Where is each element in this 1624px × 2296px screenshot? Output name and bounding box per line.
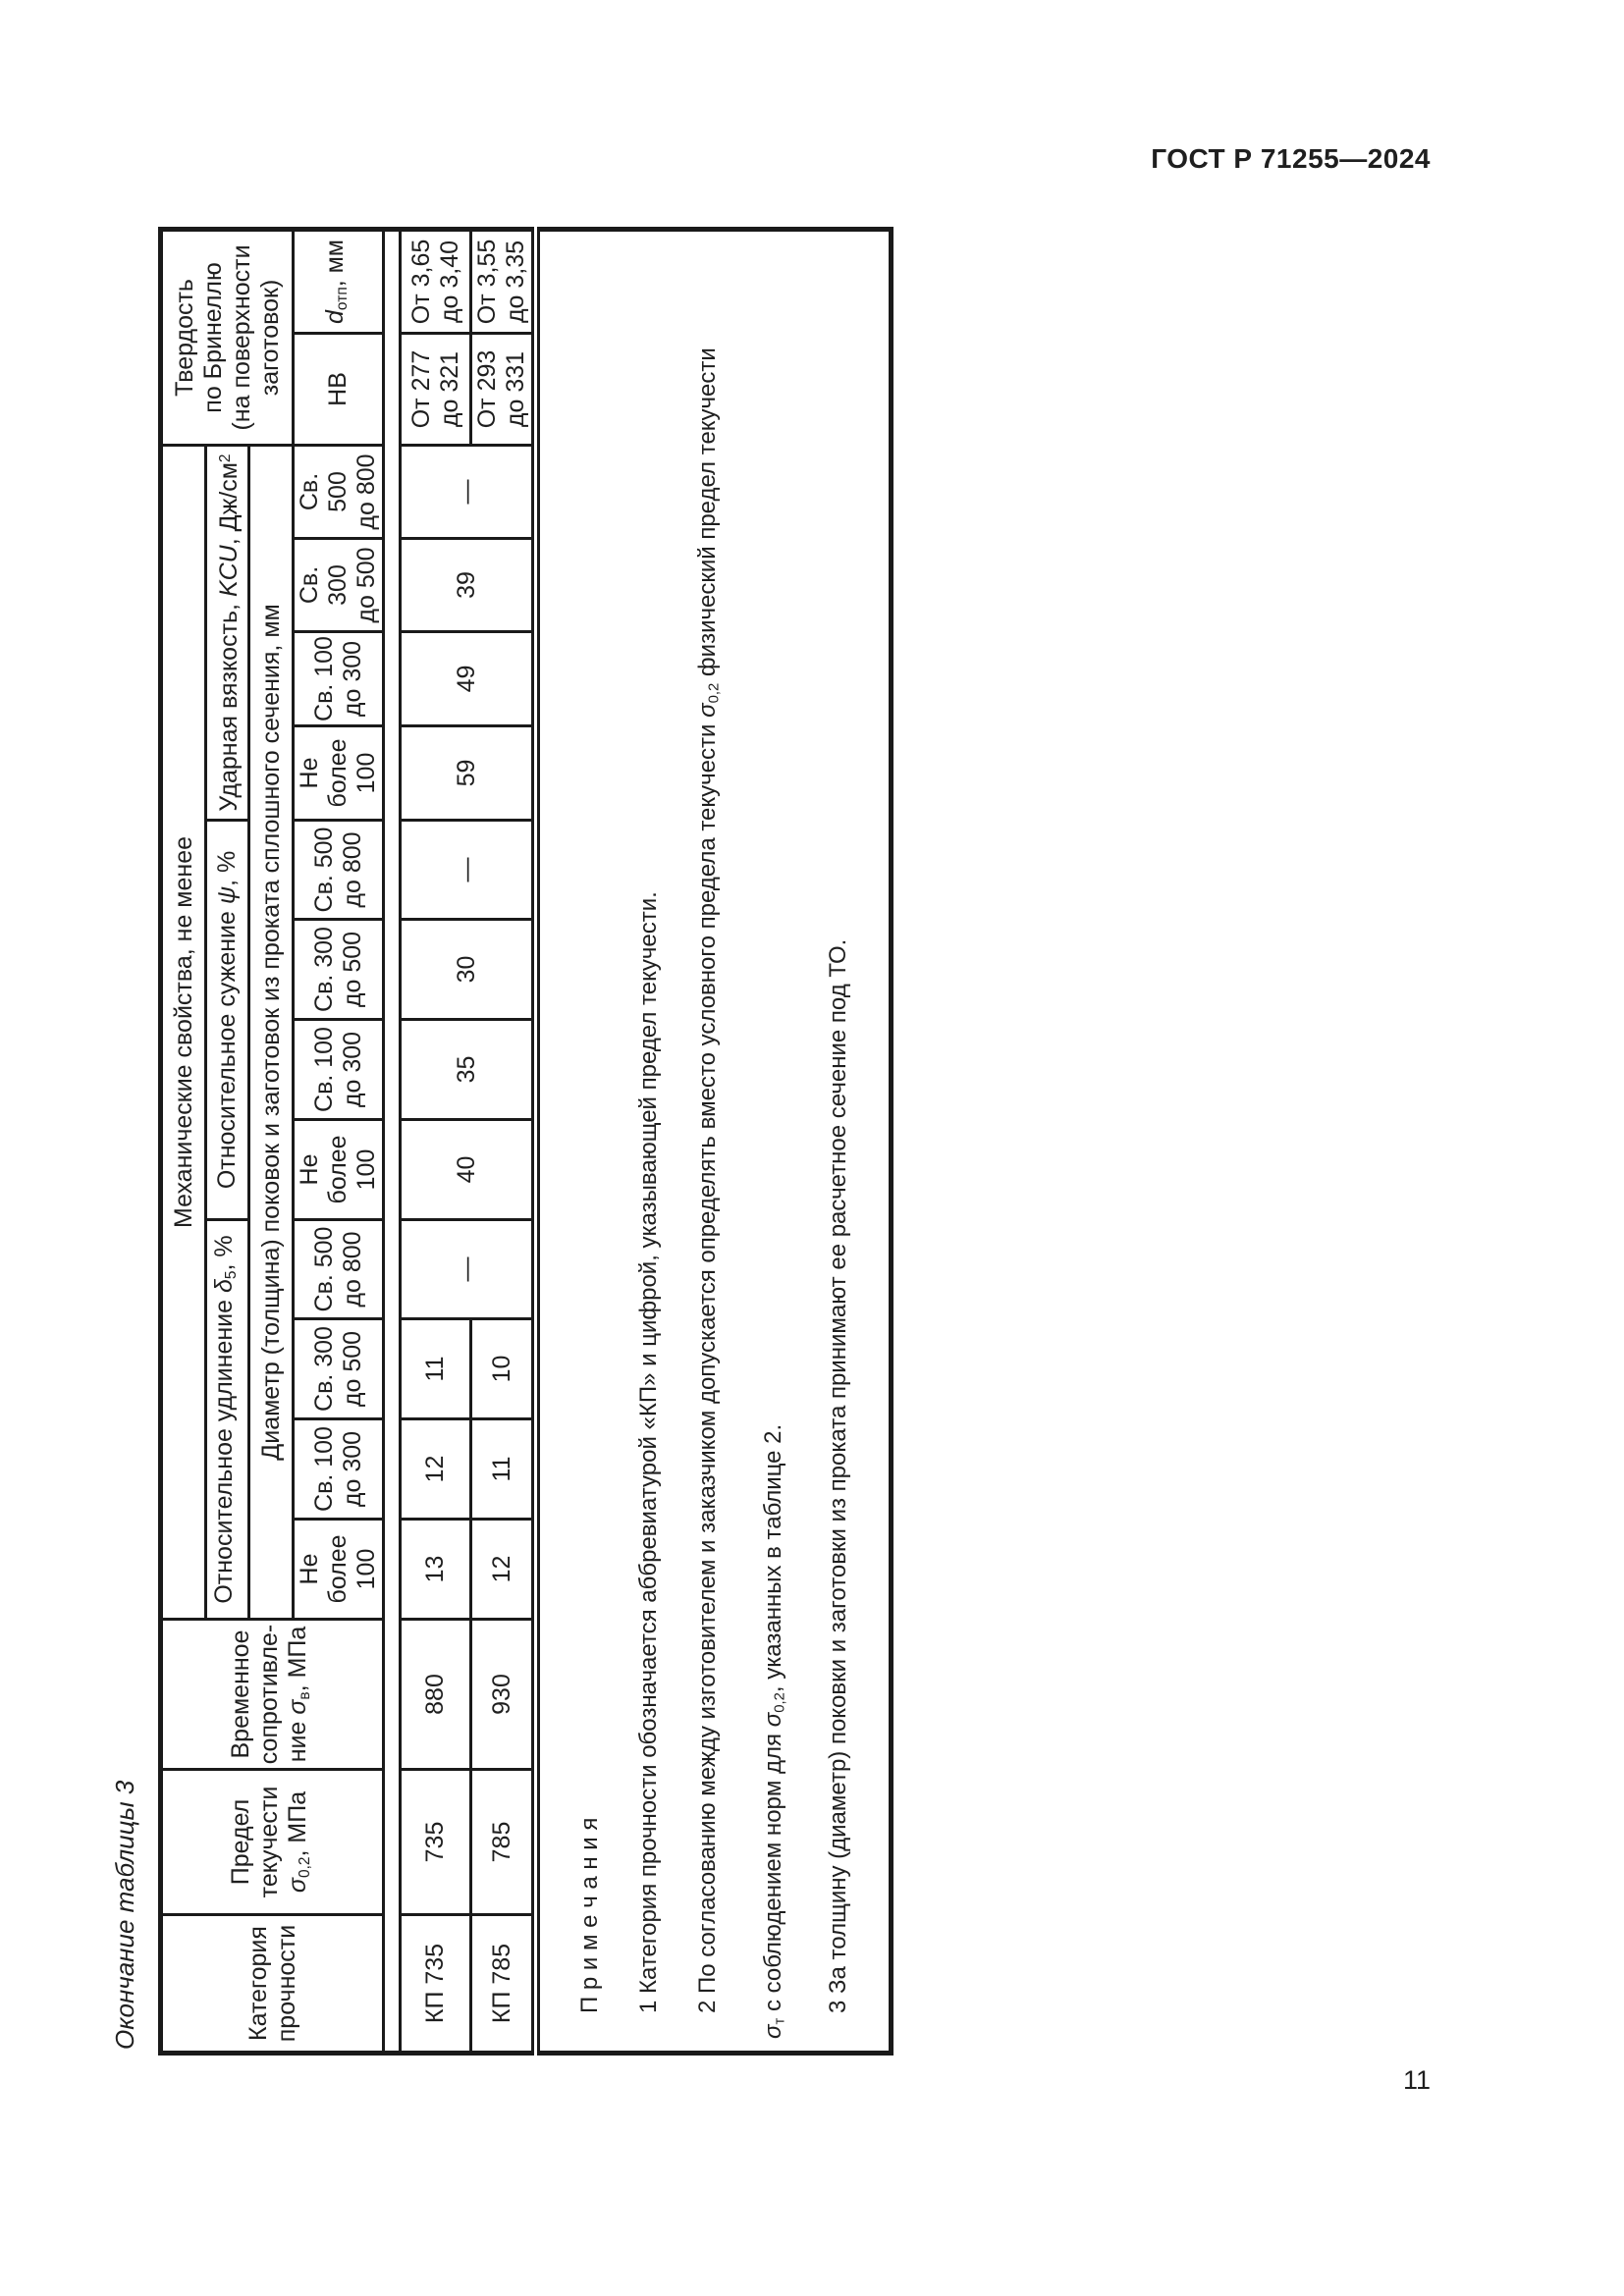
delta-5-subscript: 5: [222, 1270, 239, 1279]
header-category: Категория прочности: [161, 1915, 384, 2054]
doc-header: ГОСТ Р 71255—2024: [940, 143, 1431, 175]
gost-table-3: Категория прочности Предел текучести σ0,…: [158, 227, 893, 2056]
psi-symbol: ψ: [213, 886, 241, 904]
rotated-table-container: Категория прочности Предел текучести σ0,…: [158, 228, 678, 2056]
sigma-v-subscript: в: [296, 1691, 312, 1699]
cell-elong: 10: [471, 1319, 536, 1419]
cell-contraction-dash: —: [401, 821, 536, 920]
data-row-kp735: КП 735 735 880 13 12 11 — 40 35 30 — 59 …: [401, 229, 471, 2053]
subheader-cell: Не более 100: [294, 1120, 384, 1220]
header-diameter: Диаметр (толщина) поковок и заготовок из…: [249, 445, 294, 1619]
cell-tensile: 880: [401, 1620, 471, 1770]
cell-contraction: 30: [401, 920, 536, 1020]
subheader-cell: Св. 100 до 300: [294, 632, 384, 726]
note-3: 3 За толщину (диаметр) поковки и заготов…: [824, 243, 853, 2039]
sigma-symbol: σ: [284, 1700, 311, 1715]
header-dotp: dотп, мм: [294, 229, 384, 333]
header-hb: НВ: [294, 333, 384, 445]
header-impact: Ударная вязкость, KCU, Дж/см2: [206, 445, 249, 820]
subheader-cell: Св. 500 до 800: [294, 821, 384, 920]
cell-hb: От 277 до 321: [401, 333, 471, 445]
subheader-cell: Св. 300 до 500: [294, 920, 384, 1020]
page-number: 11: [940, 2065, 1431, 2096]
cell-contraction: 35: [401, 1020, 536, 1120]
cell-impact-dash: —: [401, 445, 536, 538]
cell-elong: 12: [471, 1520, 536, 1620]
subheader-cell: Св. 300 до 500: [294, 1319, 384, 1419]
note-2-line-1: 2 По согласованию между изготовителем и …: [693, 243, 730, 2039]
cell-impact: 59: [401, 726, 536, 821]
note-2-line-2: σт с соблюдением норм для σ0,2, указанны…: [759, 243, 795, 2039]
cell-yield: 735: [401, 1770, 471, 1915]
header-tensile-symbol: ние σв, МПа: [284, 1624, 319, 1765]
sigma-symbol: σ: [284, 1878, 311, 1893]
subheader-cell: Не более 100: [294, 726, 384, 821]
subheader-cell: Св. 500 до 800: [294, 1220, 384, 1319]
note-1: 1 Категория прочности обозначается аббре…: [634, 243, 664, 2039]
cell-hb: От 293 до 331: [471, 333, 536, 445]
cell-impact: 49: [401, 632, 536, 726]
header-yield-symbol: σ0,2, МПа: [284, 1774, 319, 1910]
cell-yield: 785: [471, 1770, 536, 1915]
subheader-cell: Св. 100 до 300: [294, 1419, 384, 1520]
squared-superscript: 2: [217, 454, 234, 462]
cell-category: КП 735: [401, 1915, 471, 2054]
header-separator-double-line: [384, 229, 401, 2053]
notes-cell: П р и м е ч а н и я 1 Категория прочност…: [536, 229, 892, 2053]
sigma-02-subscript: 0,2: [772, 1692, 787, 1713]
cell-elong: 11: [471, 1419, 536, 1520]
cell-elong: 12: [401, 1419, 471, 1520]
table-caption: Окончание таблицы 3: [110, 1657, 140, 2050]
notes-row: П р и м е ч а н и я 1 Категория прочност…: [536, 229, 892, 2053]
sigma-02-subscript: 0,2: [707, 683, 723, 704]
cell-elong: 11: [401, 1319, 471, 1419]
cell-elong-dash: —: [401, 1220, 536, 1319]
cell-elong: 13: [401, 1520, 471, 1620]
sigma-t-subscript: т: [772, 2018, 787, 2025]
header-yield-text: Предел текучести: [227, 1787, 283, 1898]
cell-tensile: 930: [471, 1620, 536, 1770]
otp-subscript: отп: [333, 287, 350, 310]
header-mechanical: Механические свойства, не менее: [161, 445, 206, 1619]
subheader-cell: Не более 100: [294, 1520, 384, 1620]
header-elongation: Относительное удлинение δ5, %: [206, 1220, 249, 1620]
cell-impact: 39: [401, 539, 536, 632]
header-contraction: Относительное сужение ψ, %: [206, 821, 249, 1220]
cell-contraction: 40: [401, 1120, 536, 1220]
cell-category: КП 785: [471, 1915, 536, 2054]
header-tensile: Временное сопротивле- ние σв, МПа: [161, 1620, 384, 1770]
header-hardness: Твердость по Бринеллю (на поверхности за…: [161, 229, 294, 445]
sigma-symbol: σ: [694, 703, 721, 717]
subheader-cell: Св. 500 до 800: [294, 445, 384, 538]
d-symbol: d: [321, 310, 349, 324]
sigma-symbol: σ: [760, 2025, 786, 2039]
cell-dotp: От 3,65 до 3,40: [401, 229, 471, 333]
document-page: ГОСТ Р 71255—2024 Окончание таблицы 3 Ка…: [0, 0, 1624, 2296]
cell-dotp: От 3,55 до 3,35: [471, 229, 536, 333]
notes-title: П р и м е ч а н и я: [575, 243, 605, 2039]
sigma-symbol: σ: [760, 1713, 786, 1727]
header-yield: Предел текучести σ0,2, МПа: [161, 1770, 384, 1915]
kcu-symbol: KCU: [215, 545, 243, 597]
delta-symbol: δ: [210, 1279, 238, 1293]
header-tensile-text: Временное сопротивле-: [227, 1625, 283, 1764]
header-row-1: Категория прочности Предел текучести σ0,…: [161, 229, 206, 2053]
subheader-cell: Св. 100 до 300: [294, 1020, 384, 1120]
subheader-cell: Св. 300 до 500: [294, 539, 384, 632]
sigma-02-subscript: 0,2: [296, 1856, 312, 1878]
